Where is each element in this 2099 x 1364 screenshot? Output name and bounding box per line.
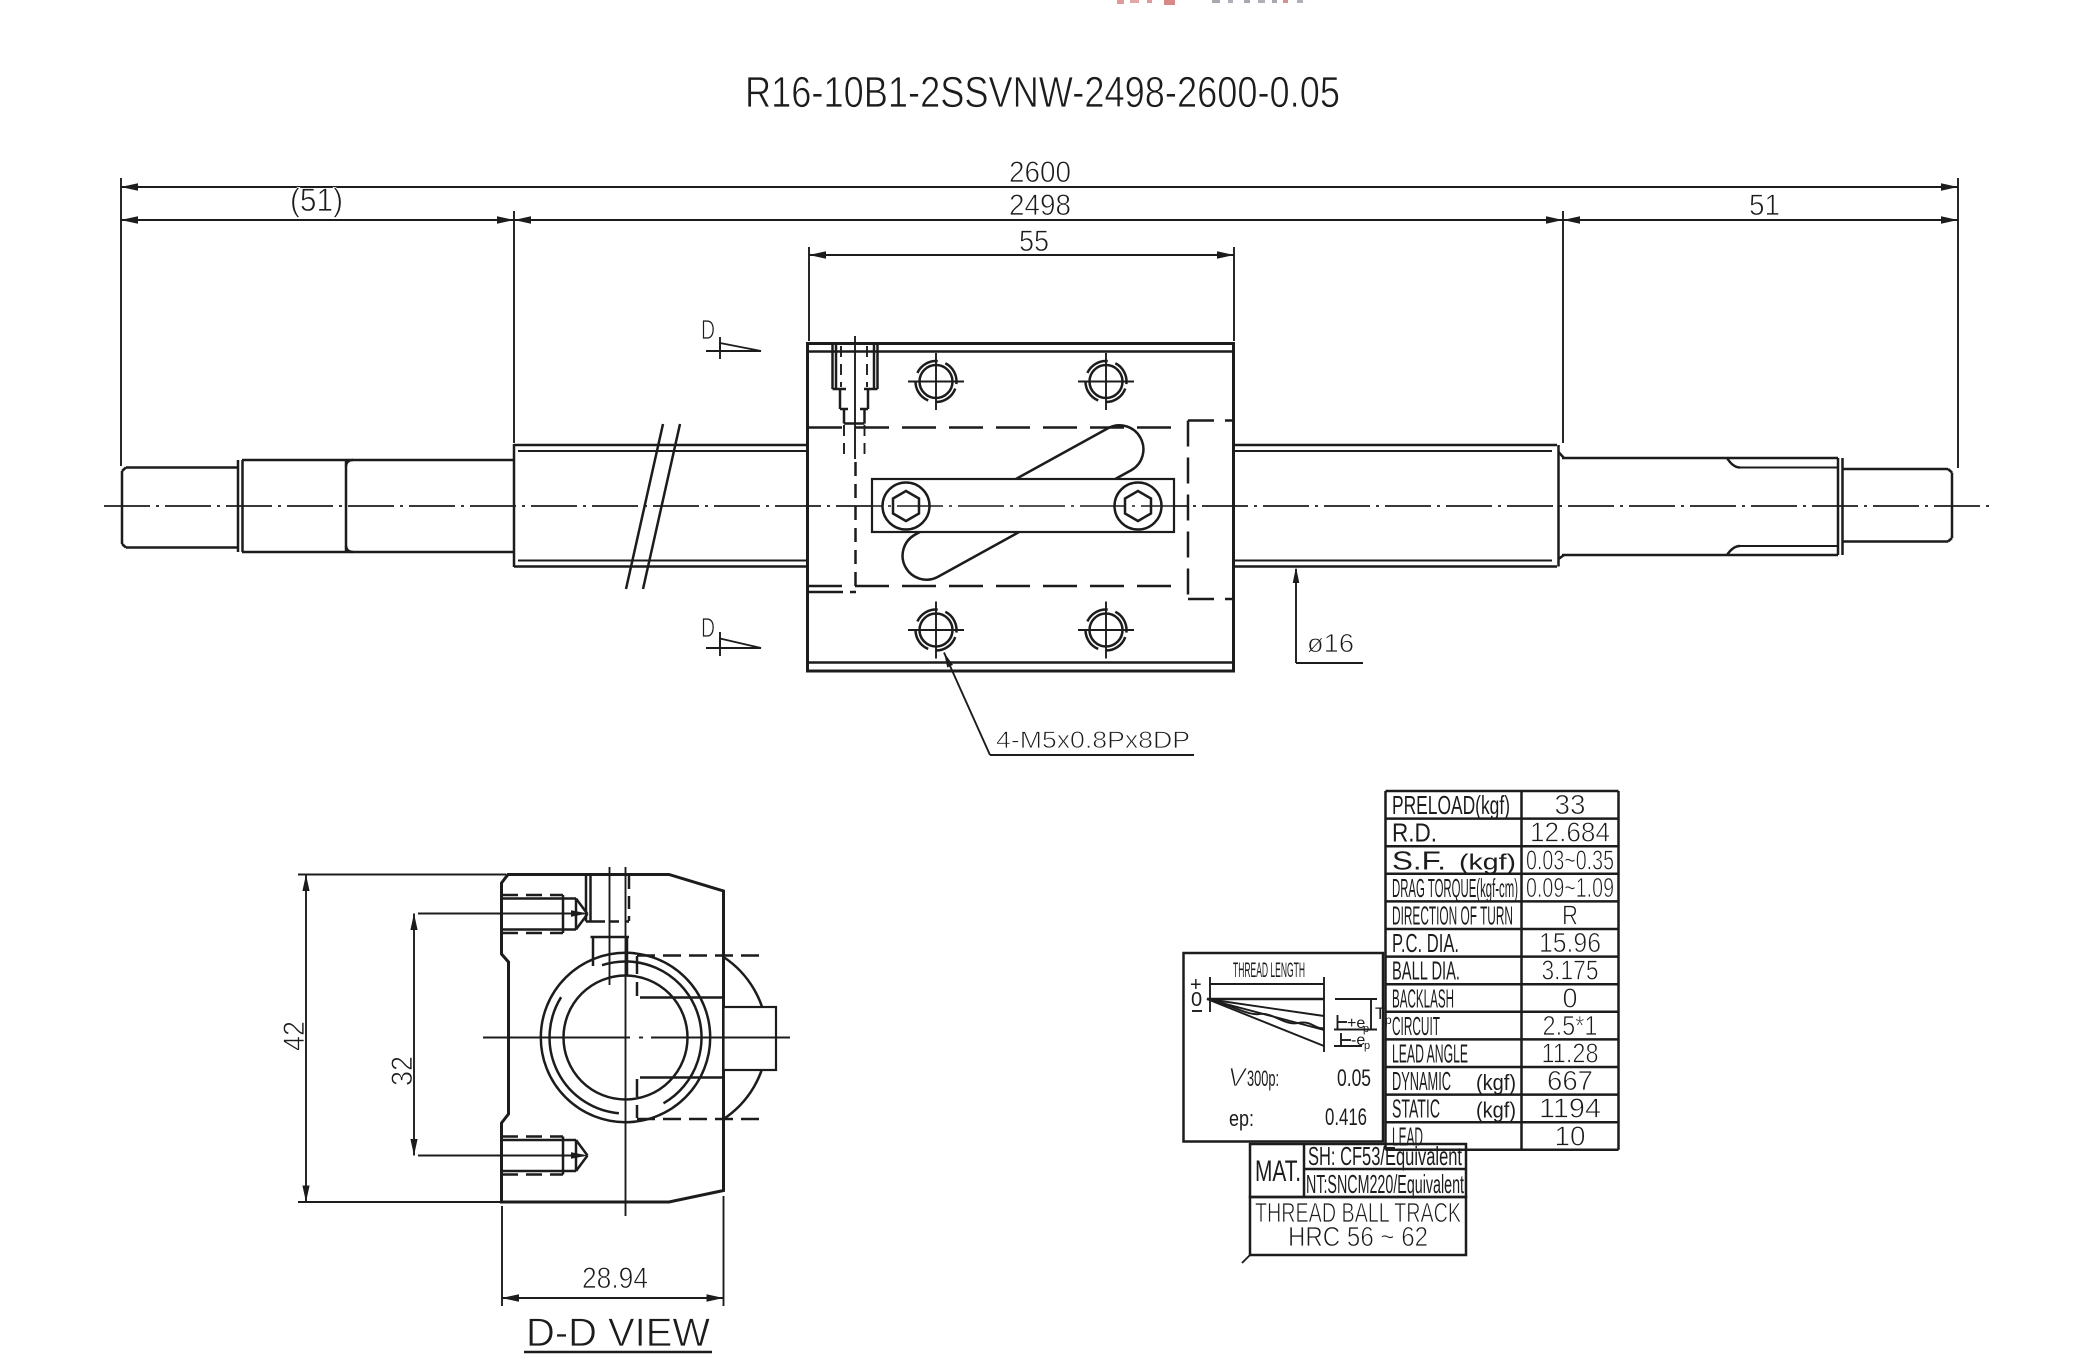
svg-text:11.28: 11.28 (1542, 1038, 1599, 1069)
svg-text:D: D (701, 612, 715, 643)
svg-text:(kgf): (kgf) (1459, 849, 1516, 874)
svg-text:DRAG TORQUE(kgf-cm): DRAG TORQUE(kgf-cm) (1392, 873, 1518, 903)
svg-text:p: p (1364, 1040, 1370, 1052)
svg-text:p: p (1385, 1013, 1392, 1027)
svg-text:BACKLASH: BACKLASH (1392, 983, 1454, 1013)
svg-text:2600: 2600 (1009, 156, 1071, 189)
svg-text:HRC 56 ~ 62: HRC 56 ~ 62 (1288, 1221, 1428, 1252)
svg-text:0.03~0.35: 0.03~0.35 (1526, 844, 1614, 875)
svg-text:R.D.: R.D. (1392, 818, 1437, 848)
svg-text:NT:SNCM220/Equivalent: NT:SNCM220/Equivalent (1306, 1169, 1464, 1199)
svg-text:(kgf): (kgf) (1476, 1070, 1516, 1095)
svg-text:ep:: ep: (1229, 1106, 1254, 1131)
svg-text:33: 33 (1555, 789, 1586, 820)
svg-text:32: 32 (386, 1056, 419, 1086)
svg-text:R: R (1562, 900, 1578, 931)
svg-text:0.09~1.09: 0.09~1.09 (1526, 872, 1614, 903)
svg-text:CIRCUIT: CIRCUIT (1392, 1011, 1440, 1041)
svg-text:DIRECTION OF TURN: DIRECTION OF TURN (1392, 901, 1513, 931)
svg-text:12.684: 12.684 (1530, 817, 1610, 848)
svg-text:667: 667 (1547, 1065, 1593, 1096)
svg-text:42: 42 (278, 1021, 311, 1051)
svg-text:P.C. DIA.: P.C. DIA. (1392, 928, 1459, 958)
svg-text:3.175: 3.175 (1542, 955, 1599, 986)
svg-text:MAT.: MAT. (1255, 1155, 1301, 1188)
svg-text:28.94: 28.94 (582, 1262, 648, 1295)
svg-text:D-D VIEW: D-D VIEW (526, 1311, 710, 1355)
svg-text:PRELOAD(kgf): PRELOAD(kgf) (1392, 790, 1510, 820)
svg-text:15.96: 15.96 (1539, 927, 1601, 958)
svg-text:STATIC: STATIC (1392, 1094, 1440, 1124)
svg-text:0.416: 0.416 (1325, 1104, 1367, 1131)
svg-text:D: D (701, 314, 715, 345)
svg-text:2.5*1: 2.5*1 (1543, 1010, 1598, 1041)
svg-text:BALL DIA.: BALL DIA. (1392, 956, 1460, 986)
svg-text:(51): (51) (290, 182, 343, 218)
svg-text:(kgf): (kgf) (1476, 1098, 1516, 1123)
svg-text:S.F.: S.F. (1392, 845, 1446, 875)
svg-text:10: 10 (1555, 1120, 1586, 1151)
svg-text:V: V (1228, 1062, 1248, 1092)
svg-text:ø16: ø16 (1307, 628, 1354, 658)
svg-text:4-M5x0.8Px8DP: 4-M5x0.8Px8DP (996, 727, 1190, 754)
svg-text:55: 55 (1019, 225, 1049, 258)
svg-text:THREAD LENGTH: THREAD LENGTH (1233, 959, 1305, 982)
svg-text:LEAD ANGLE: LEAD ANGLE (1392, 1039, 1468, 1069)
svg-text:51: 51 (1749, 189, 1780, 222)
svg-text:0: 0 (1191, 989, 1202, 1011)
svg-text:R16-10B1-2SSVNW-2498-2600-0.05: R16-10B1-2SSVNW-2498-2600-0.05 (745, 68, 1340, 117)
svg-text:T: T (1375, 1004, 1385, 1023)
svg-text:300p:: 300p: (1247, 1066, 1279, 1091)
svg-text:1194: 1194 (1539, 1093, 1601, 1124)
svg-text:2498: 2498 (1009, 189, 1071, 222)
svg-text:SH: CF53/Equivalent: SH: CF53/Equivalent (1308, 1141, 1462, 1171)
svg-text:0.05: 0.05 (1337, 1065, 1371, 1092)
svg-text:DYNAMIC: DYNAMIC (1392, 1066, 1451, 1096)
svg-text:0: 0 (1563, 982, 1578, 1013)
